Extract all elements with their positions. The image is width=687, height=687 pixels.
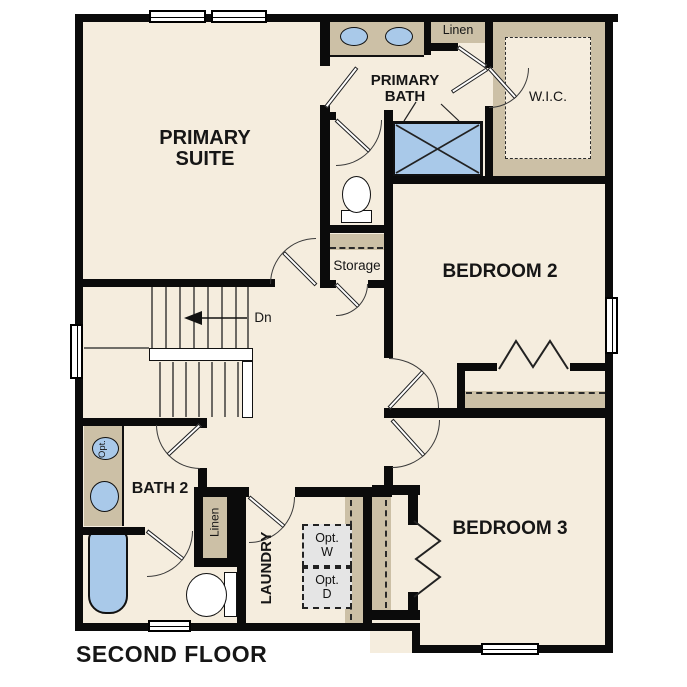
window-mullion — [150, 626, 189, 627]
window — [149, 10, 206, 23]
storage-shelf-dash — [330, 247, 383, 249]
bedroom3-closet-shelf — [372, 497, 391, 610]
window — [211, 10, 267, 23]
wall — [384, 408, 613, 418]
wall — [320, 14, 330, 66]
bedroom3-label: BEDROOM 3 — [434, 519, 586, 539]
shower — [392, 121, 483, 177]
stair-railing-horizontal — [149, 348, 253, 361]
wall — [485, 106, 493, 176]
wall — [194, 487, 203, 567]
wall — [408, 495, 418, 525]
window — [605, 297, 618, 354]
wall — [570, 363, 613, 371]
floor-plan: Opt. W Opt. D — [0, 0, 687, 687]
wall — [237, 497, 246, 623]
bedroom2-label: BEDROOM 2 — [424, 262, 576, 282]
wall — [457, 363, 497, 371]
linen-lower-label: Linen — [209, 497, 222, 547]
bath2-label: BATH 2 — [124, 481, 196, 498]
optional-washer-box: Opt. W — [302, 524, 352, 567]
stair-railing-vertical — [242, 361, 253, 418]
primary-sink-left — [340, 27, 368, 46]
primary-bath-label: PRIMARY BATH — [353, 73, 457, 105]
exterior-wall-bottom-left — [75, 623, 420, 631]
bathtub — [88, 530, 128, 614]
wall — [320, 280, 336, 288]
wall — [368, 280, 392, 288]
wall — [322, 112, 336, 120]
window-mullion — [612, 299, 613, 352]
wall — [384, 110, 393, 358]
primary-sink-right — [385, 27, 413, 46]
wall — [408, 592, 418, 620]
window-mullion — [151, 17, 204, 18]
wall — [372, 485, 420, 495]
page-title: SECOND FLOOR — [76, 642, 356, 666]
wall — [385, 176, 613, 184]
window-mullion — [213, 17, 265, 18]
bedroom3-shelf-dash — [385, 500, 387, 608]
wall — [485, 14, 493, 68]
wall — [326, 225, 386, 233]
wall — [430, 43, 458, 51]
primary-suite-label: PRIMARY SUITE — [145, 128, 265, 170]
bath2-sink — [90, 481, 119, 512]
wc-toilet-bowl — [342, 176, 371, 213]
wall — [83, 527, 145, 535]
wall — [194, 558, 237, 567]
wall — [83, 279, 275, 287]
storage-label: Storage — [327, 259, 387, 273]
wall — [363, 497, 372, 623]
optional-sink-label: Opt. — [98, 434, 108, 464]
linen-upper-label: Linen — [431, 24, 485, 37]
laundry-label: LAUNDRY — [259, 528, 275, 608]
optional-dryer-label: Opt. D — [310, 574, 344, 602]
window — [148, 620, 191, 632]
exterior-wall-left — [75, 14, 83, 631]
wic-label: W.I.C. — [508, 89, 588, 104]
window — [70, 324, 83, 379]
window-mullion — [483, 649, 537, 650]
window-mullion — [77, 326, 78, 377]
bath2-toilet-bowl — [186, 573, 227, 617]
optional-washer-label: Opt. W — [310, 532, 344, 560]
wall — [198, 487, 249, 497]
optional-dryer-box: Opt. D — [302, 567, 352, 609]
wall — [227, 487, 237, 567]
window — [481, 643, 539, 655]
stair-direction-label: Dn — [249, 311, 277, 325]
bedroom2-shelf-dash — [466, 392, 605, 394]
